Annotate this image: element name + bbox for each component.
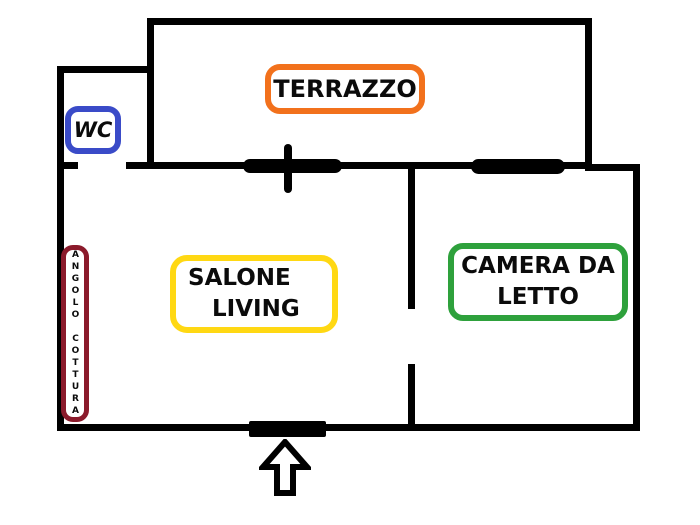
entrance-arrow-icon — [259, 439, 311, 497]
room-label-terrazzo: TERRAZZO — [265, 64, 425, 114]
terrace-french-door-tick — [284, 144, 292, 193]
terrazzo-label-text: TERRAZZO — [271, 75, 419, 103]
wall-terrace-top — [147, 18, 590, 25]
room-label-salone-living: SALONE LIVING — [170, 255, 338, 333]
floorplan: TERRAZZO WC SALONE LIVING CAMERA DA LETT… — [0, 0, 700, 525]
salone-label-line1: SALONE — [176, 263, 332, 294]
entrance-door-symbol — [249, 421, 326, 437]
angolo-cottura-label-text: ANGOLO COTTURA — [71, 250, 80, 418]
wall-bedroom-divider-upper — [408, 165, 415, 309]
salone-label-line2: LIVING — [176, 294, 332, 325]
wall-terrace-left — [147, 18, 154, 169]
wall-right-connector — [585, 164, 640, 171]
wall-bedroom-divider-lower — [408, 364, 415, 424]
wall-terrace-right — [585, 18, 592, 169]
wc-label-text: WC — [71, 118, 115, 142]
wall-bottom-exterior — [57, 424, 640, 431]
camera-label-line1: CAMERA DA — [454, 251, 622, 282]
terrace-window-symbol — [471, 159, 565, 174]
wall-wc-top — [57, 66, 154, 73]
camera-label-line2: LETTO — [454, 282, 622, 313]
wall-mid-left-stub — [57, 162, 78, 169]
room-label-angolo-cottura: ANGOLO COTTURA — [61, 245, 89, 422]
room-label-wc: WC — [65, 106, 121, 154]
room-label-camera-da-letto: CAMERA DA LETTO — [448, 243, 628, 321]
wall-right-exterior — [633, 164, 640, 431]
terrace-french-door-symbol — [243, 159, 342, 173]
